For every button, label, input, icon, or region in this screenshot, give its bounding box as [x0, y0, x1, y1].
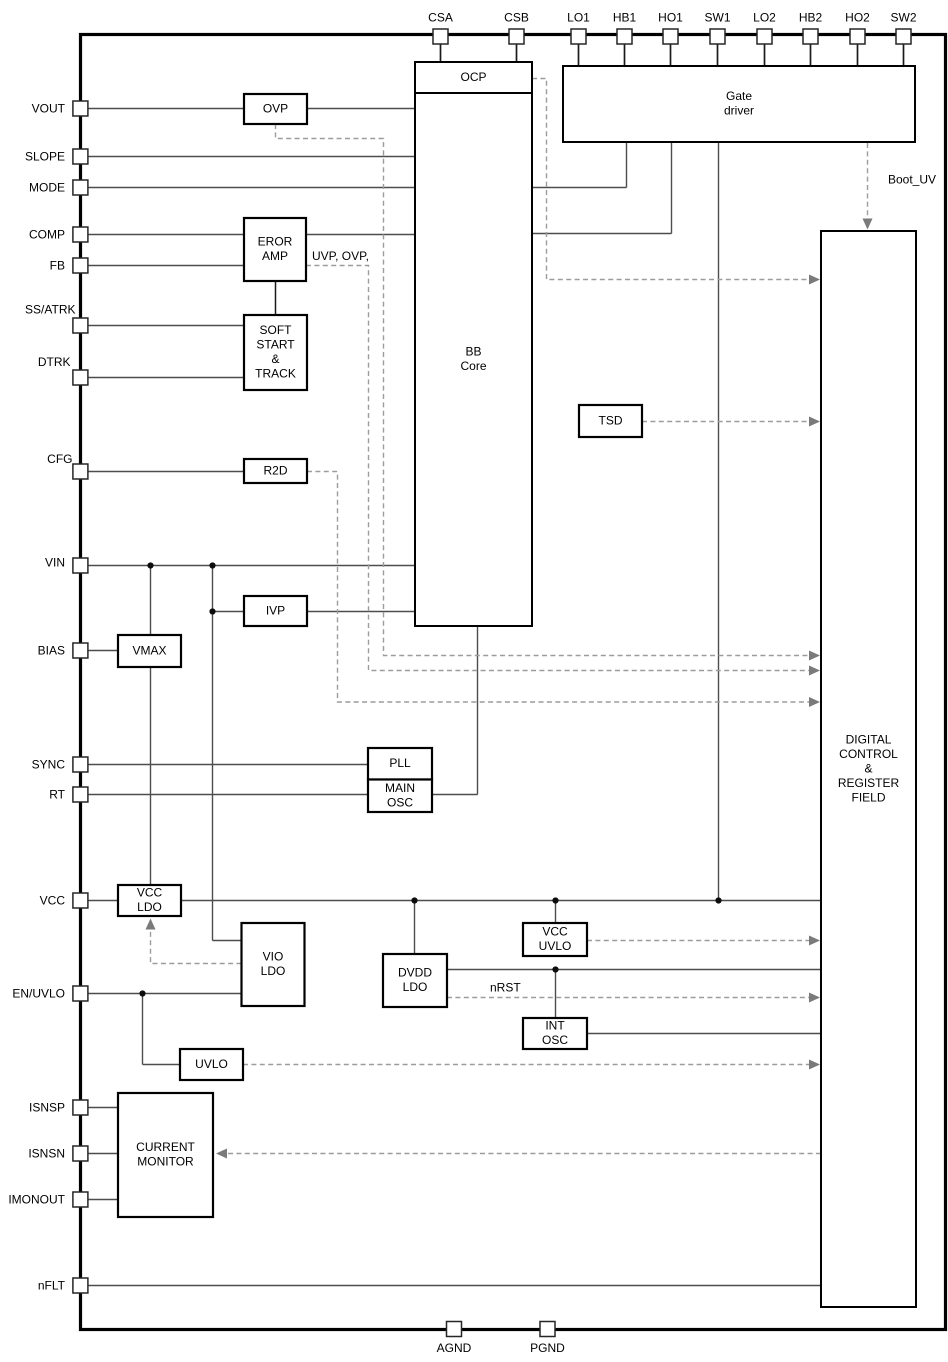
svg-text:BIAS: BIAS — [38, 643, 65, 657]
svg-text:SW1: SW1 — [704, 11, 730, 25]
svg-text:UVLO: UVLO — [195, 1057, 228, 1071]
svg-text:REGISTER: REGISTER — [838, 776, 900, 790]
svg-text:ISNSN: ISNSN — [28, 1146, 65, 1160]
svg-text:DTRK: DTRK — [38, 355, 71, 369]
svg-text:CSB: CSB — [504, 11, 529, 25]
svg-text:OVP: OVP — [263, 101, 288, 115]
svg-text:VOUT: VOUT — [32, 101, 66, 115]
svg-text:LDO: LDO — [261, 964, 286, 978]
svg-text:EROR: EROR — [258, 235, 293, 249]
svg-text:ISNSP: ISNSP — [29, 1100, 65, 1114]
svg-text:CURRENT: CURRENT — [136, 1140, 195, 1154]
svg-text:AGND: AGND — [437, 1341, 472, 1355]
svg-text:FIELD: FIELD — [851, 790, 885, 804]
svg-text:TRACK: TRACK — [255, 367, 296, 381]
svg-text:HO2: HO2 — [845, 11, 870, 25]
svg-text:LO2: LO2 — [753, 11, 776, 25]
svg-text:DIGITAL: DIGITAL — [846, 732, 892, 746]
svg-text:HB2: HB2 — [799, 11, 823, 25]
svg-text:SW2: SW2 — [890, 11, 916, 25]
svg-text:VCC: VCC — [40, 893, 66, 907]
svg-text:BB: BB — [465, 344, 481, 358]
svg-text:VCC: VCC — [137, 886, 163, 900]
svg-text:RT: RT — [49, 787, 65, 801]
svg-text:LDO: LDO — [137, 900, 162, 914]
svg-text:LDO: LDO — [403, 980, 428, 994]
svg-text:IMONOUT: IMONOUT — [8, 1192, 65, 1206]
svg-text:Boot_UV: Boot_UV — [888, 173, 936, 187]
svg-text:VMAX: VMAX — [132, 643, 166, 657]
svg-text:HB1: HB1 — [613, 11, 637, 25]
svg-text:OSC: OSC — [542, 1033, 568, 1047]
svg-text:MAIN: MAIN — [385, 781, 415, 795]
svg-text:MODE: MODE — [29, 180, 65, 194]
svg-text:MONITOR: MONITOR — [137, 1155, 194, 1169]
svg-text:COMP: COMP — [29, 227, 65, 241]
svg-text:CSA: CSA — [428, 11, 453, 25]
svg-text:AMP: AMP — [262, 249, 288, 263]
svg-text:&: & — [864, 761, 872, 775]
svg-text:EN/UVLO: EN/UVLO — [12, 986, 65, 1000]
svg-text:nFLT: nFLT — [38, 1278, 66, 1292]
svg-text:PLL: PLL — [389, 756, 411, 770]
svg-text:FB: FB — [50, 258, 65, 272]
svg-text:DVDD: DVDD — [398, 966, 432, 980]
svg-text:VCC: VCC — [542, 925, 568, 939]
svg-text:Gate: Gate — [726, 89, 752, 103]
svg-text:HO1: HO1 — [658, 11, 683, 25]
svg-text:SS/ATRK: SS/ATRK — [25, 303, 75, 317]
svg-text:VIN: VIN — [45, 555, 65, 569]
svg-text:IVP: IVP — [266, 603, 285, 617]
svg-text:R2D: R2D — [263, 463, 287, 477]
svg-text:TSD: TSD — [599, 413, 623, 427]
svg-text:UVP, OVP,: UVP, OVP, — [312, 249, 369, 263]
svg-text:PGND: PGND — [530, 1341, 565, 1355]
svg-text:CFG: CFG — [47, 452, 72, 466]
svg-text:SOFT: SOFT — [260, 323, 293, 337]
svg-text:CONTROL: CONTROL — [839, 747, 898, 761]
svg-text:OSC: OSC — [387, 795, 413, 809]
svg-text:SLOPE: SLOPE — [25, 149, 65, 163]
svg-text:Core: Core — [460, 359, 486, 373]
svg-text:LO1: LO1 — [567, 11, 590, 25]
svg-text:UVLO: UVLO — [539, 939, 572, 953]
svg-text:driver: driver — [724, 104, 754, 118]
svg-text:OCP: OCP — [460, 70, 486, 84]
svg-text:SYNC: SYNC — [32, 757, 66, 771]
svg-text:INT: INT — [545, 1019, 565, 1033]
svg-text:START: START — [256, 338, 295, 352]
svg-text:&: & — [271, 352, 279, 366]
svg-text:nRST: nRST — [490, 981, 521, 995]
svg-text:VIO: VIO — [263, 950, 284, 964]
